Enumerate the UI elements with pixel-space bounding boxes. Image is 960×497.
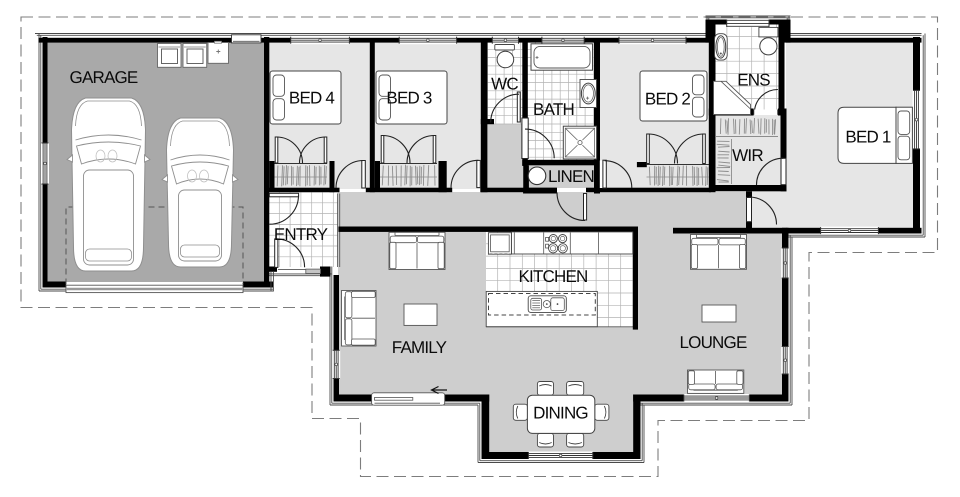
svg-text:FAMILY: FAMILY — [392, 338, 447, 357]
svg-text:LINEN: LINEN — [548, 167, 594, 186]
svg-text:BED 3: BED 3 — [386, 89, 431, 108]
svg-text:ENTRY: ENTRY — [274, 225, 328, 244]
svg-text:BATH: BATH — [533, 100, 574, 119]
svg-text:WIR: WIR — [732, 146, 763, 165]
svg-text:BED 4: BED 4 — [289, 89, 334, 108]
svg-text:BED 2: BED 2 — [645, 90, 690, 109]
svg-text:BED 1: BED 1 — [845, 128, 890, 147]
svg-text:WC: WC — [491, 74, 518, 93]
svg-text:ENS: ENS — [737, 71, 770, 90]
svg-text:GARAGE: GARAGE — [70, 68, 138, 87]
svg-text:LOUNGE: LOUNGE — [680, 333, 747, 352]
svg-text:KITCHEN: KITCHEN — [518, 267, 587, 286]
svg-text:DINING: DINING — [533, 403, 588, 422]
